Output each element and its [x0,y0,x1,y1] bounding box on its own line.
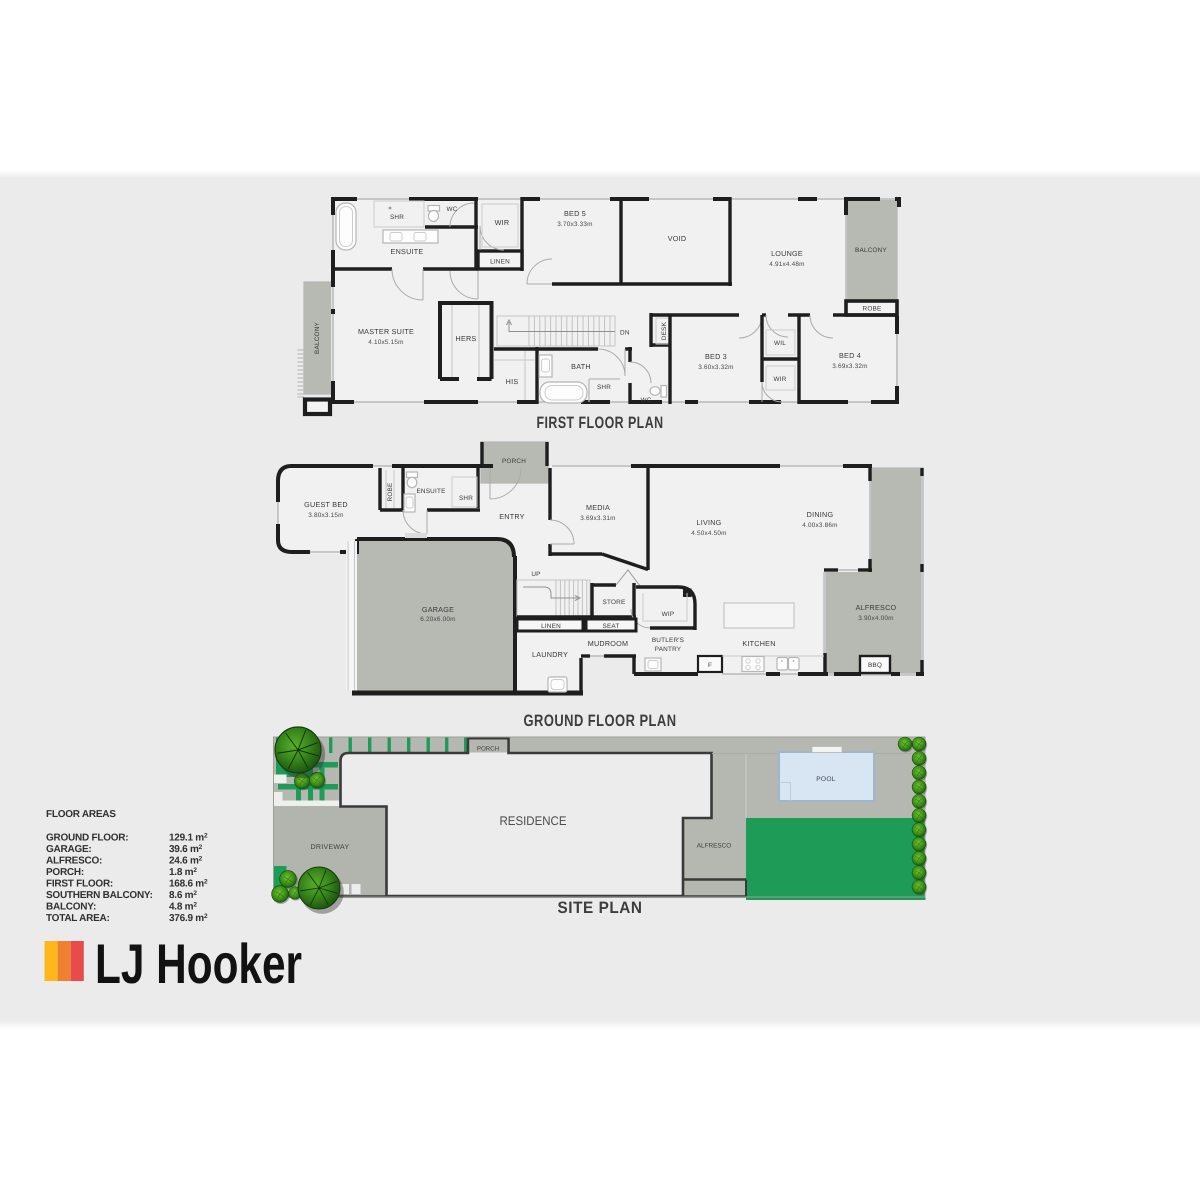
svg-text:PORCH:: PORCH: [46,867,84,878]
svg-text:4.91x4.48m: 4.91x4.48m [769,261,804,268]
svg-text:3.90x4.00m: 3.90x4.00m [858,615,893,622]
svg-text:ALFRESCO:: ALFRESCO: [46,856,102,867]
svg-text:ALFRESCO: ALFRESCO [697,843,731,850]
svg-text:BED 5: BED 5 [564,209,586,218]
svg-text:8.6 m2: 8.6 m2 [169,890,197,901]
svg-text:BBQ: BBQ [868,662,882,669]
svg-text:VOID: VOID [668,234,687,243]
svg-text:BALCONY:: BALCONY: [46,902,96,913]
svg-text:ENTRY: ENTRY [499,512,524,521]
svg-text:HIS: HIS [506,377,519,386]
svg-text:POOL: POOL [816,776,836,783]
svg-text:WC: WC [640,397,651,404]
svg-text:ALFRESCO: ALFRESCO [856,603,897,612]
svg-text:SITE PLAN: SITE PLAN [558,899,643,917]
svg-text:BATH: BATH [571,362,591,371]
svg-text:MASTER SUITE: MASTER SUITE [358,327,414,336]
svg-text:SHR: SHR [597,384,611,391]
svg-text:KITCHEN: KITCHEN [742,639,775,648]
svg-text:UP: UP [531,571,540,578]
svg-text:168.6 m2: 168.6 m2 [169,879,208,890]
svg-text:MUDROOM: MUDROOM [588,639,628,648]
svg-text:STORE: STORE [603,599,626,606]
svg-text:WIR: WIR [773,376,786,383]
svg-text:WIL: WIL [774,340,786,347]
svg-text:BED 3: BED 3 [705,352,727,361]
svg-text:GROUND FLOOR PLAN: GROUND FLOOR PLAN [524,712,677,730]
svg-text:TOTAL AREA:: TOTAL AREA: [46,913,110,924]
svg-text:GROUND FLOOR:: GROUND FLOOR: [46,833,128,844]
svg-text:MEDIA: MEDIA [586,503,610,512]
svg-text:BUTLER'S: BUTLER'S [652,637,684,644]
svg-text:BALCONY: BALCONY [855,247,887,254]
svg-text:PORCH: PORCH [477,746,499,753]
svg-text:RESIDENCE: RESIDENCE [500,814,567,828]
svg-text:GARAGE: GARAGE [422,605,454,614]
svg-text:SHR: SHR [390,214,404,221]
svg-text:4.50x4.50m: 4.50x4.50m [691,530,726,537]
svg-text:DINING: DINING [807,510,834,519]
svg-text:ENSUITE: ENSUITE [416,488,445,495]
svg-text:LIVING: LIVING [696,518,721,527]
svg-text:3.80x3.15m: 3.80x3.15m [308,512,343,519]
svg-text:4.8 m2: 4.8 m2 [169,902,197,913]
svg-text:1.8 m2: 1.8 m2 [169,867,197,878]
svg-text:4.10x5.15m: 4.10x5.15m [368,339,403,346]
svg-text:F: F [708,662,712,669]
svg-text:PORCH: PORCH [502,458,526,465]
svg-text:6.20x6.00m: 6.20x6.00m [420,616,455,623]
svg-text:FIRST FLOOR PLAN: FIRST FLOOR PLAN [537,414,664,432]
svg-text:3.70x3.33m: 3.70x3.33m [557,221,592,228]
svg-text:HERS: HERS [456,334,477,343]
svg-text:WIR: WIR [495,218,510,227]
svg-text:LINEN: LINEN [541,623,561,630]
svg-text:3.60x3.32m: 3.60x3.32m [698,364,733,371]
svg-text:BED 4: BED 4 [839,351,861,360]
svg-text:DRIVEWAY: DRIVEWAY [311,844,350,851]
svg-text:GUEST BED: GUEST BED [304,500,348,509]
svg-text:ENSUITE: ENSUITE [391,247,424,256]
svg-text:BALCONY: BALCONY [314,321,321,353]
svg-text:DESK: DESK [661,321,668,340]
svg-text:WC: WC [446,206,457,213]
svg-text:129.1 m2: 129.1 m2 [169,833,208,844]
svg-text:SHR: SHR [459,495,473,502]
svg-text:24.6 m2: 24.6 m2 [169,856,203,867]
svg-text:DN: DN [620,330,630,337]
svg-text:ROBE: ROBE [387,483,394,502]
svg-text:GARAGE:: GARAGE: [46,844,91,855]
svg-text:FLOOR AREAS: FLOOR AREAS [46,809,116,820]
svg-text:SOUTHERN BALCONY:: SOUTHERN BALCONY: [46,890,153,901]
svg-text:LOUNGE: LOUNGE [771,249,803,258]
svg-text:3.69x3.32m: 3.69x3.32m [832,363,867,370]
svg-text:LINEN: LINEN [490,259,510,266]
svg-text:PANTRY: PANTRY [655,646,682,653]
svg-text:3.69x3.31m: 3.69x3.31m [580,515,615,522]
svg-text:SEAT: SEAT [602,623,619,630]
svg-text:FIRST FLOOR:: FIRST FLOOR: [46,879,113,890]
svg-text:39.6 m2: 39.6 m2 [169,844,203,855]
svg-text:ROBE: ROBE [863,306,882,313]
svg-text:376.9 m2: 376.9 m2 [169,913,208,924]
svg-text:LJ Hooker: LJ Hooker [95,932,302,995]
svg-text:WIP: WIP [662,611,675,618]
svg-text:4.00x3.86m: 4.00x3.86m [802,522,837,529]
svg-text:LAUNDRY: LAUNDRY [532,650,568,659]
